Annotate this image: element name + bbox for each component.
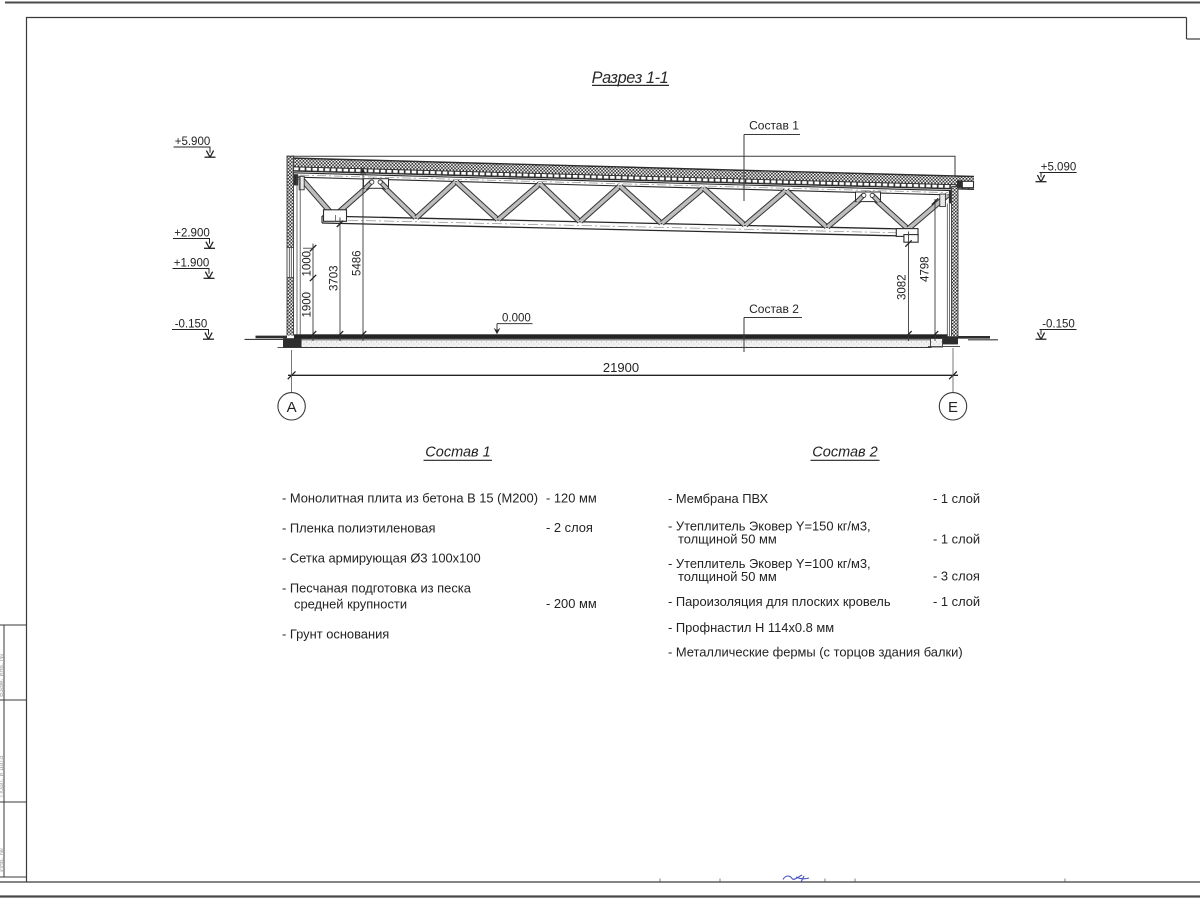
svg-text:- Металлические фермы (с торцо: - Металлические фермы (с торцов здания б… bbox=[668, 645, 963, 660]
svg-text:Состав 1: Состав 1 bbox=[749, 119, 799, 133]
svg-text:21900: 21900 bbox=[603, 360, 639, 375]
svg-text:- 1 слой: - 1 слой bbox=[933, 594, 980, 609]
svg-text:- 2 слоя: - 2 слоя bbox=[546, 520, 593, 535]
svg-text:- Сетка армирующая Ø3 100х100: - Сетка армирующая Ø3 100х100 bbox=[282, 551, 481, 566]
svg-text:0.000: 0.000 bbox=[502, 312, 531, 324]
svg-text:- Грунт основания: - Грунт основания bbox=[282, 627, 389, 642]
svg-text:А: А bbox=[287, 399, 297, 416]
svg-text:Подп. и дата: Подп. и дата bbox=[0, 756, 5, 797]
svg-text:-0.150: -0.150 bbox=[175, 318, 208, 330]
svg-text:1900: 1900 bbox=[302, 292, 314, 318]
svg-text:толщиной 50 мм: толщиной 50 мм bbox=[678, 532, 777, 547]
svg-text:4798: 4798 bbox=[920, 256, 932, 282]
svg-text:- Мембрана ПВХ: - Мембрана ПВХ bbox=[668, 491, 769, 506]
svg-text:Взам. инв. №: Взам. инв. № bbox=[0, 654, 5, 697]
svg-text:- 1 слой: - 1 слой bbox=[933, 532, 980, 547]
svg-text:-0.150: -0.150 bbox=[1042, 318, 1075, 330]
svg-text:Состав 2: Состав 2 bbox=[749, 302, 799, 316]
svg-text:- Пленка полиэтиленовая: - Пленка полиэтиленовая bbox=[282, 521, 435, 536]
svg-text:Инв. №: Инв. № bbox=[0, 848, 5, 872]
svg-text:+5.090: +5.090 bbox=[1041, 161, 1077, 173]
svg-text:толщиной 50 мм: толщиной 50 мм bbox=[678, 569, 777, 584]
svg-text:Состав 1: Состав 1 bbox=[425, 444, 490, 460]
svg-text:- 3 слоя: - 3 слоя bbox=[933, 569, 980, 584]
svg-text:Е: Е bbox=[948, 399, 958, 416]
svg-text:+2.900: +2.900 bbox=[174, 227, 210, 239]
svg-text:3082: 3082 bbox=[897, 274, 909, 300]
svg-text:5486: 5486 bbox=[352, 250, 364, 276]
svg-text:+1.900: +1.900 bbox=[174, 257, 210, 269]
svg-text:- 120 мм: - 120 мм bbox=[546, 491, 597, 506]
svg-text:Состав 2: Состав 2 bbox=[812, 444, 877, 460]
svg-text:+5.900: +5.900 bbox=[175, 136, 211, 148]
svg-text:Разрез 1-1: Разрез 1-1 bbox=[592, 69, 669, 87]
svg-text:средней крупности: средней крупности bbox=[294, 597, 407, 612]
svg-text:- 200 мм: - 200 мм bbox=[546, 596, 597, 611]
svg-text:- Песчаная подготовка из песка: - Песчаная подготовка из песка bbox=[282, 581, 472, 596]
svg-text:1000: 1000 bbox=[302, 251, 314, 277]
svg-text:- Профнастил Н 114х0.8 мм: - Профнастил Н 114х0.8 мм bbox=[668, 620, 834, 635]
svg-text:- Пароизоляция для плоских кро: - Пароизоляция для плоских кровель bbox=[668, 594, 891, 609]
svg-text:3703: 3703 bbox=[329, 265, 341, 291]
svg-text:- Монолитная плита из бетона В: - Монолитная плита из бетона В 15 (М200) bbox=[282, 491, 538, 506]
svg-text:- 1 слой: - 1 слой bbox=[933, 491, 980, 506]
